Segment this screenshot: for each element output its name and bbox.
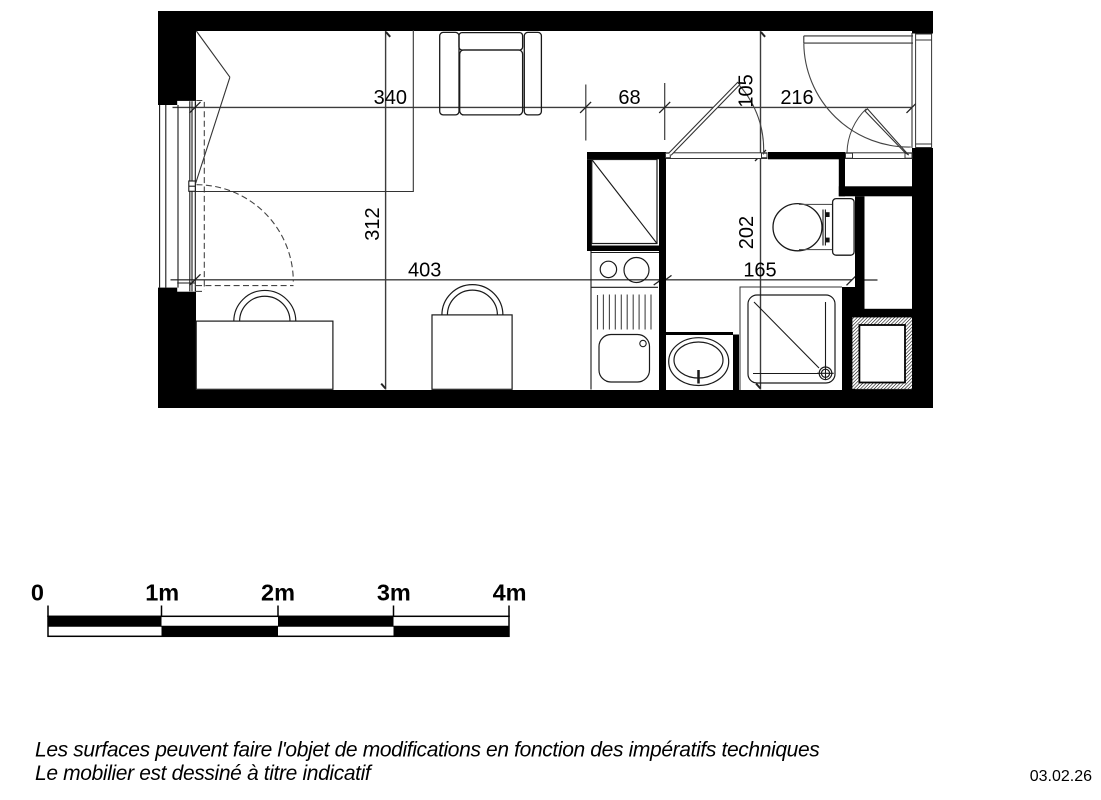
svg-text:4m: 4m	[493, 580, 527, 606]
svg-text:202: 202	[736, 216, 758, 249]
svg-text:2m: 2m	[261, 580, 295, 606]
svg-text:Les surfaces peuvent faire l'o: Les surfaces peuvent faire l'objet de mo…	[35, 739, 820, 762]
svg-text:0: 0	[31, 580, 44, 606]
svg-text:403: 403	[408, 259, 441, 281]
svg-text:216: 216	[780, 87, 813, 109]
svg-text:165: 165	[743, 259, 776, 281]
svg-text:105: 105	[735, 74, 757, 107]
svg-text:68: 68	[618, 87, 640, 109]
svg-text:03.02.26: 03.02.26	[1030, 768, 1092, 785]
svg-text:340: 340	[374, 87, 407, 109]
svg-text:3m: 3m	[377, 580, 411, 606]
svg-text:312: 312	[362, 207, 384, 240]
svg-text:1m: 1m	[145, 580, 179, 606]
svg-text:Le mobilier est dessiné à titr: Le mobilier est dessiné à titre indicati…	[35, 762, 373, 785]
